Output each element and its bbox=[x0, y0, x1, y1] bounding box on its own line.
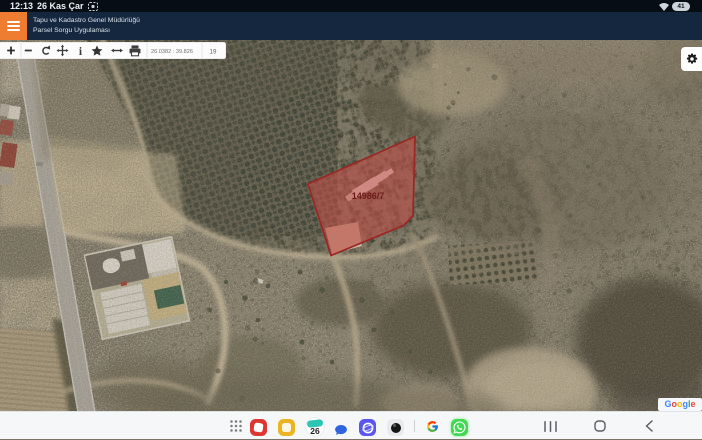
svg-text:19: 19 bbox=[210, 48, 217, 55]
svg-text:26.0382 : 39.826: 26.0382 : 39.826 bbox=[151, 49, 193, 55]
svg-text:14986/7: 14986/7 bbox=[352, 191, 385, 201]
